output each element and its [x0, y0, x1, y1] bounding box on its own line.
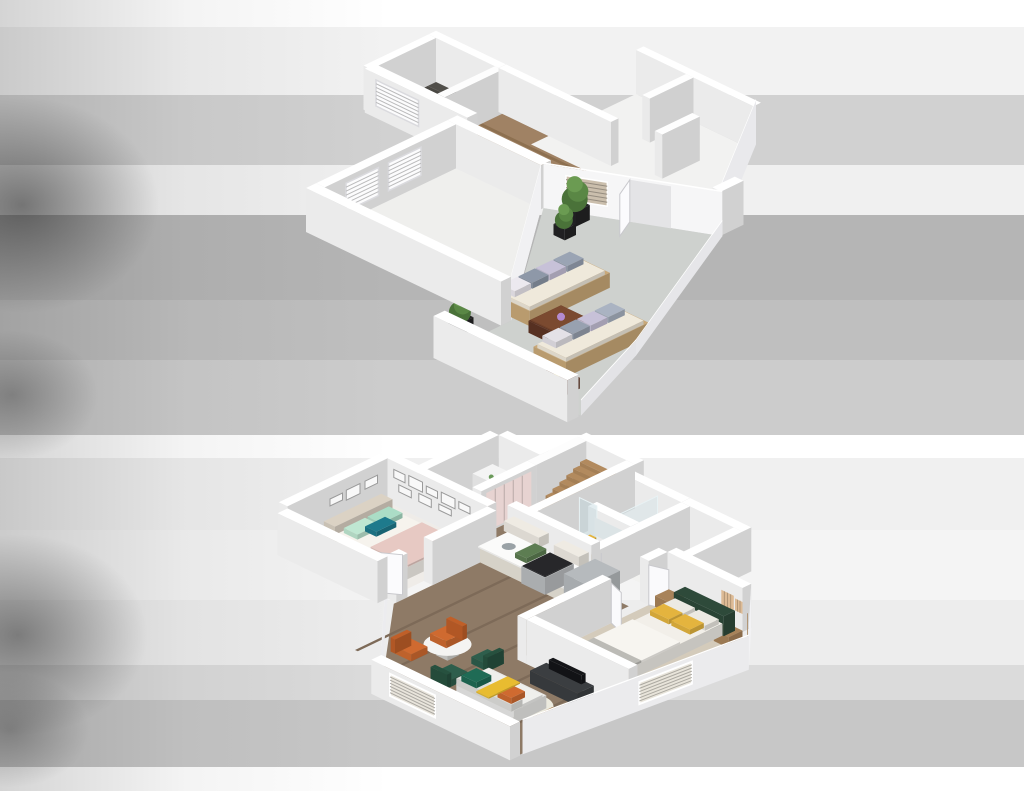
- lower-floor-plan-render[interactable]: [278, 431, 752, 761]
- upper-floor-plan-render[interactable]: [306, 31, 761, 422]
- sink: [502, 543, 516, 550]
- floor-plan-gallery: [0, 0, 1024, 791]
- flower-vase: [557, 313, 565, 321]
- floor-plan-canvas: [0, 0, 1024, 791]
- doorway: [630, 180, 671, 229]
